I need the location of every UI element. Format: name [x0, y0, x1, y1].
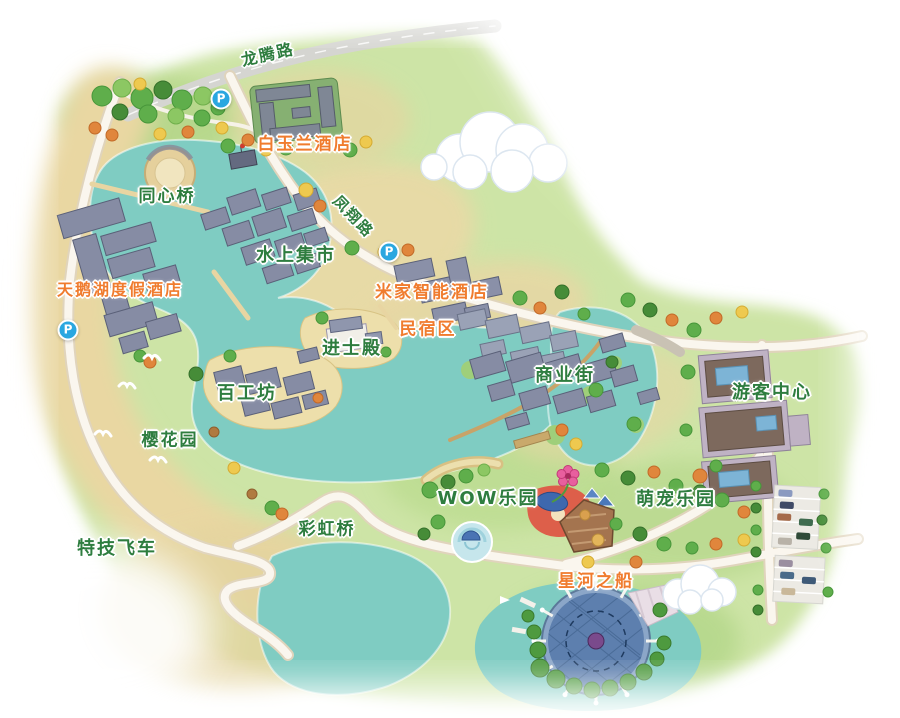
parking-icon: P	[379, 242, 400, 263]
label-yinghua-garden: 樱花园	[142, 433, 199, 450]
label-visitor-center: 游客中心	[732, 384, 812, 402]
label-wow-park: WOW乐园	[437, 490, 538, 508]
label-minsu-area: 民宿区	[400, 322, 457, 339]
park-map: 龙腾路 白玉兰酒店 同心桥 凤翔路 水上集市 天鹅湖度假酒店 米家智能酒店 民宿…	[0, 0, 900, 718]
map-artwork	[0, 0, 900, 718]
label-mijia-hotel: 米家智能酒店	[375, 285, 489, 302]
label-baiyulan-hotel: 白玉兰酒店	[258, 137, 353, 154]
spiral-pool	[452, 522, 492, 562]
label-tongxin-bridge: 同心桥	[139, 189, 196, 206]
parking-icon: P	[58, 320, 79, 341]
label-shangye-street: 商业街	[535, 367, 595, 385]
parking-icon: P	[211, 89, 232, 110]
label-xinghe-ship: 星河之船	[558, 574, 634, 591]
label-caihong-bridge: 彩虹桥	[299, 522, 356, 539]
label-shuishang-market: 水上集市	[256, 247, 336, 265]
label-tianehu-hotel: 天鹅湖度假酒店	[57, 282, 183, 298]
label-stunt-car: 特技飞车	[77, 540, 157, 558]
label-mengchong-park: 萌宠乐园	[636, 491, 716, 509]
label-baigong-workshop: 百工坊	[217, 385, 277, 403]
label-jinshi-hall: 进士殿	[322, 340, 382, 358]
